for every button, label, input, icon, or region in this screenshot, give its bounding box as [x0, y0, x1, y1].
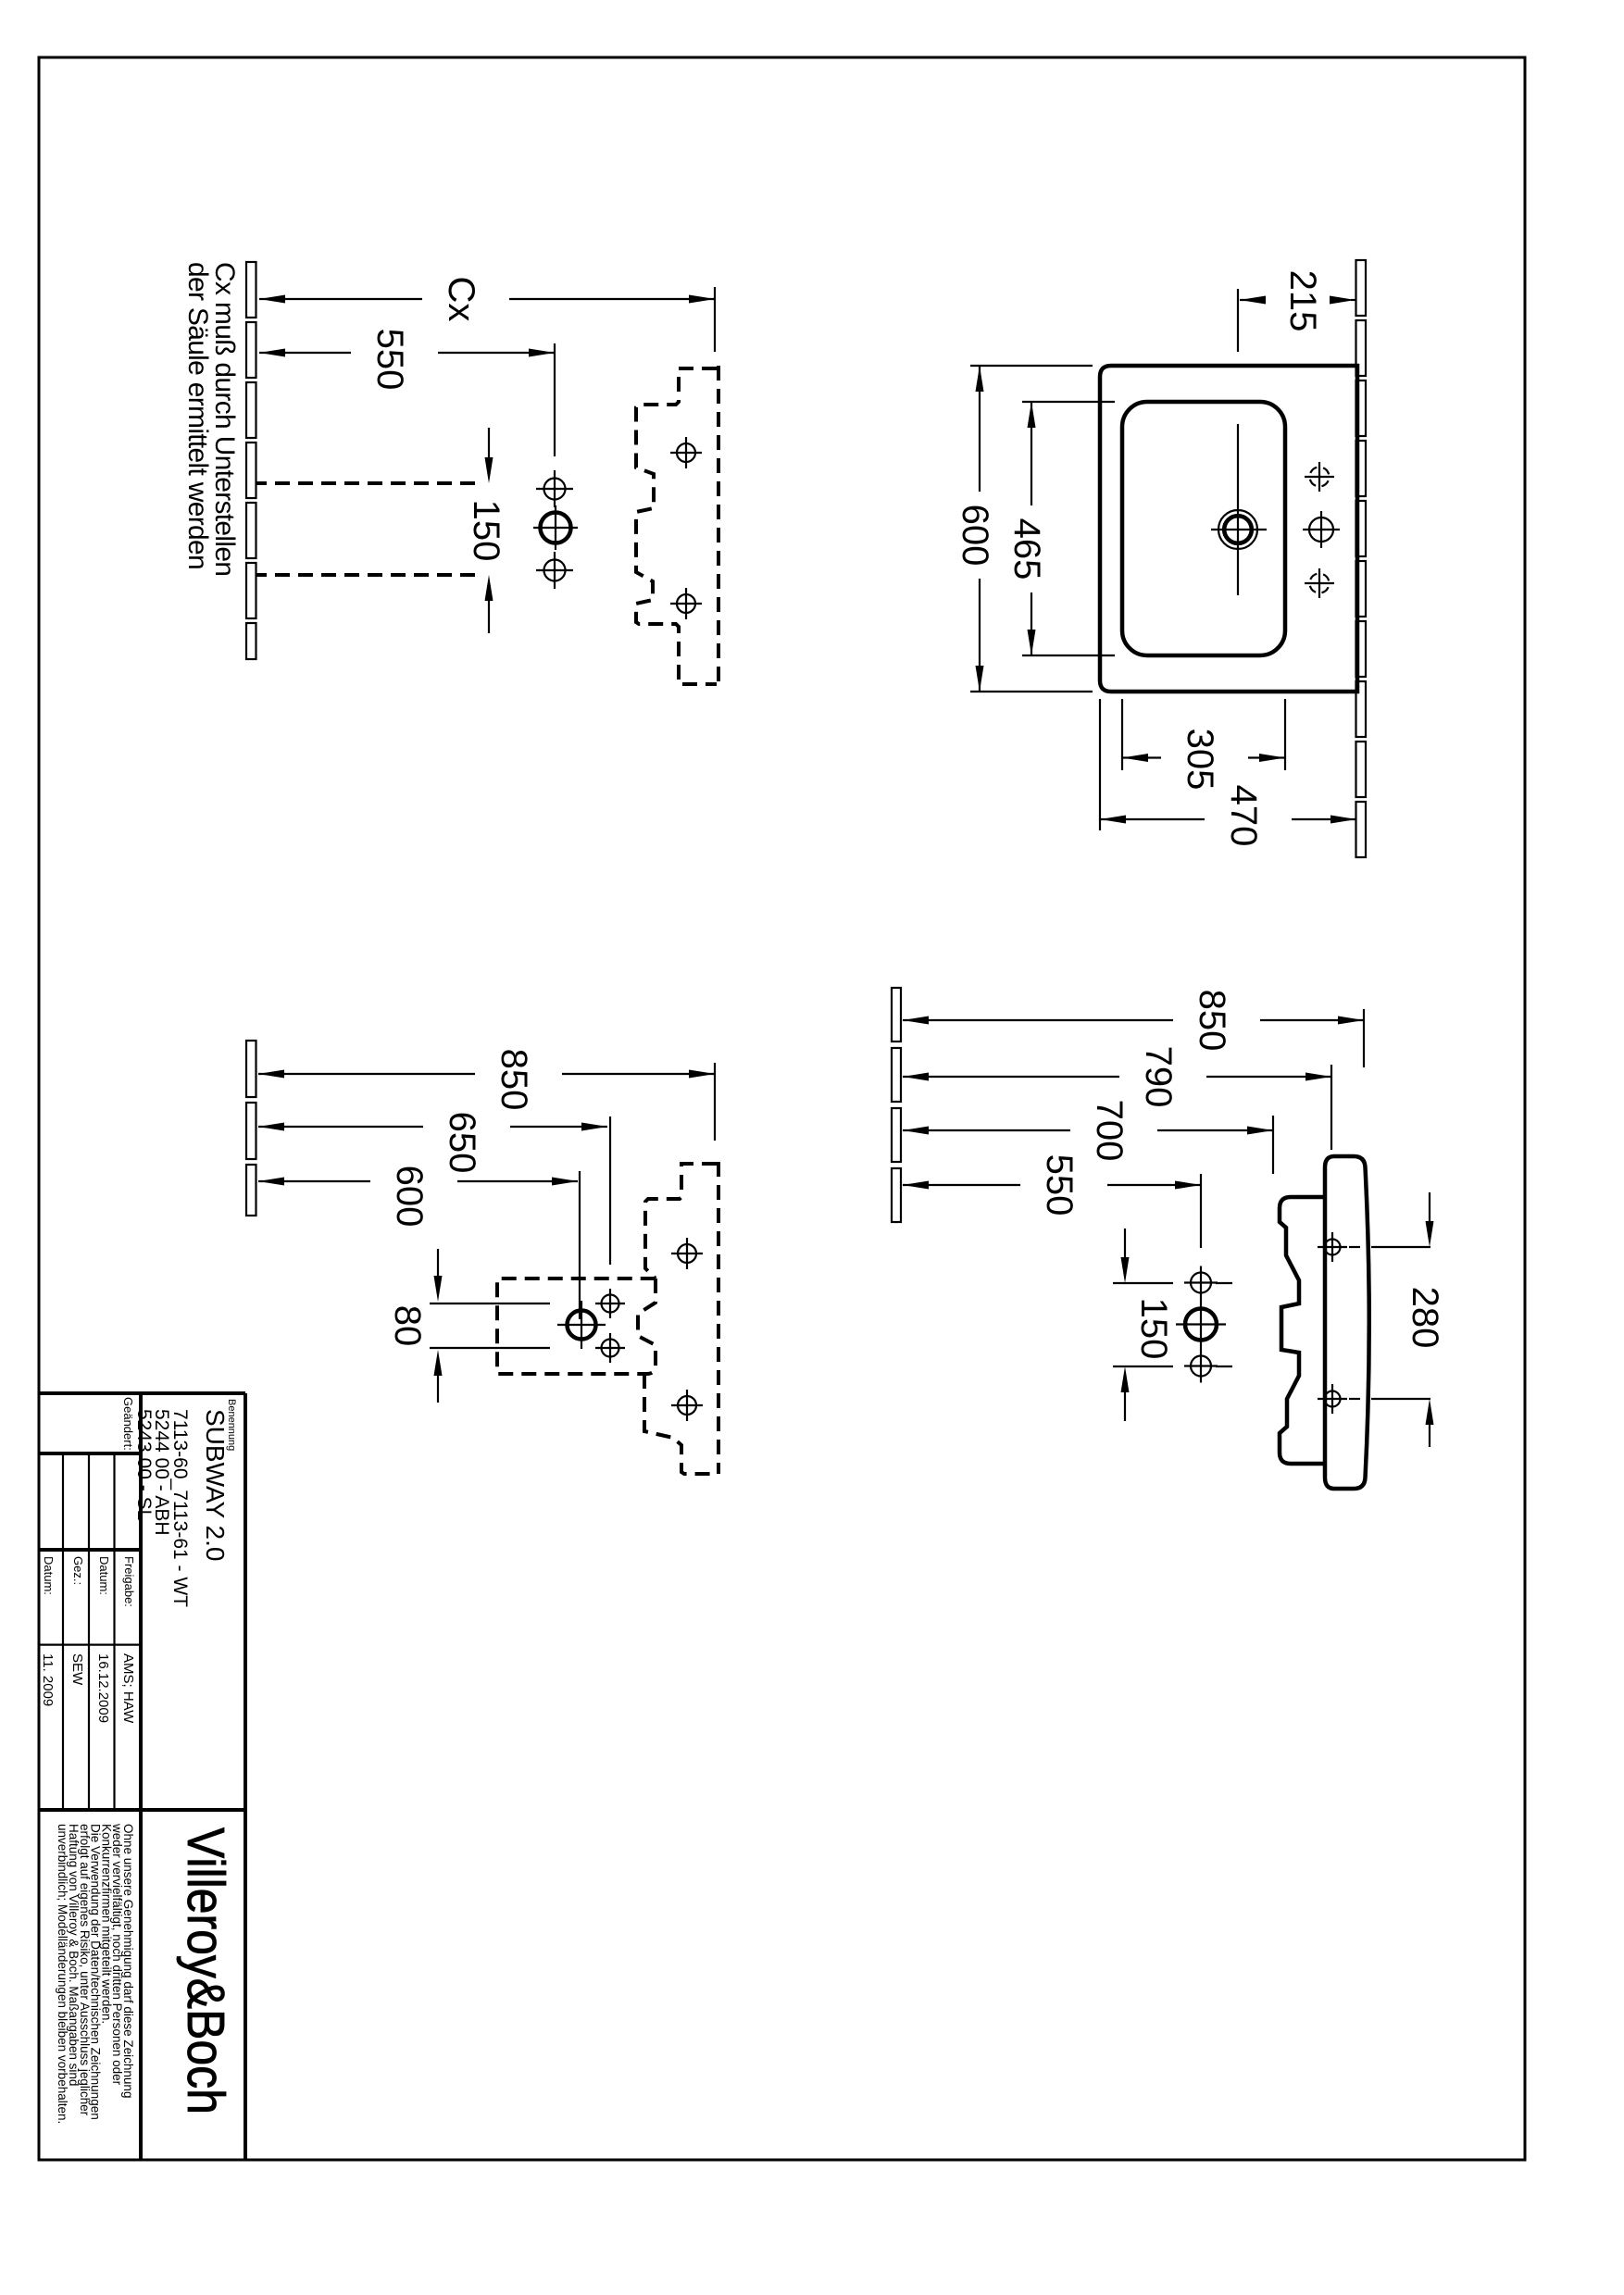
svg-text:305: 305 [1180, 729, 1220, 791]
svg-text:SEW: SEW [69, 1653, 85, 1686]
svg-text:Geändert:: Geändert: [121, 1397, 135, 1451]
svg-text:SUBWAY 2.0: SUBWAY 2.0 [201, 1409, 230, 1561]
svg-text:650: 650 [442, 1112, 482, 1174]
svg-text:550: 550 [369, 329, 410, 391]
svg-text:16.12.2009: 16.12.2009 [95, 1653, 111, 1723]
svg-text:600: 600 [955, 505, 995, 567]
svg-text:150: 150 [1133, 1298, 1174, 1360]
svg-text:470: 470 [1223, 785, 1264, 847]
svg-text:der Säule ermittelt werden: der Säule ermittelt werden [182, 262, 213, 569]
svg-text:5243 00 - SL: 5243 00 - SL [133, 1409, 155, 1520]
svg-text:850: 850 [493, 1049, 534, 1111]
svg-text:11. 2009: 11. 2009 [40, 1653, 56, 1706]
svg-text:AMS; HAW: AMS; HAW [120, 1653, 136, 1724]
svg-text:unverbindlich; Modelländerunge: unverbindlich; Modelländerungen bleiben … [56, 1824, 69, 2124]
svg-text:280: 280 [1405, 1287, 1445, 1349]
svg-text:600: 600 [389, 1166, 430, 1228]
svg-text:Datum:: Datum: [97, 1556, 111, 1595]
svg-text:80: 80 [387, 1305, 428, 1347]
svg-text:465: 465 [1006, 518, 1047, 580]
svg-text:790: 790 [1138, 1046, 1179, 1108]
svg-text:150: 150 [466, 500, 506, 562]
svg-text:700: 700 [1089, 1100, 1130, 1162]
svg-text:Cx: Cx [441, 277, 481, 322]
svg-text:850: 850 [1192, 990, 1232, 1052]
svg-text:Freigabe:: Freigabe: [122, 1556, 136, 1607]
svg-text:550: 550 [1039, 1154, 1080, 1216]
svg-text:Gez.:: Gez.: [71, 1556, 85, 1585]
svg-text:Datum:: Datum: [42, 1556, 56, 1595]
svg-text:Villeroy&Boch: Villeroy&Boch [176, 1827, 235, 2114]
svg-text:215: 215 [1282, 270, 1323, 332]
